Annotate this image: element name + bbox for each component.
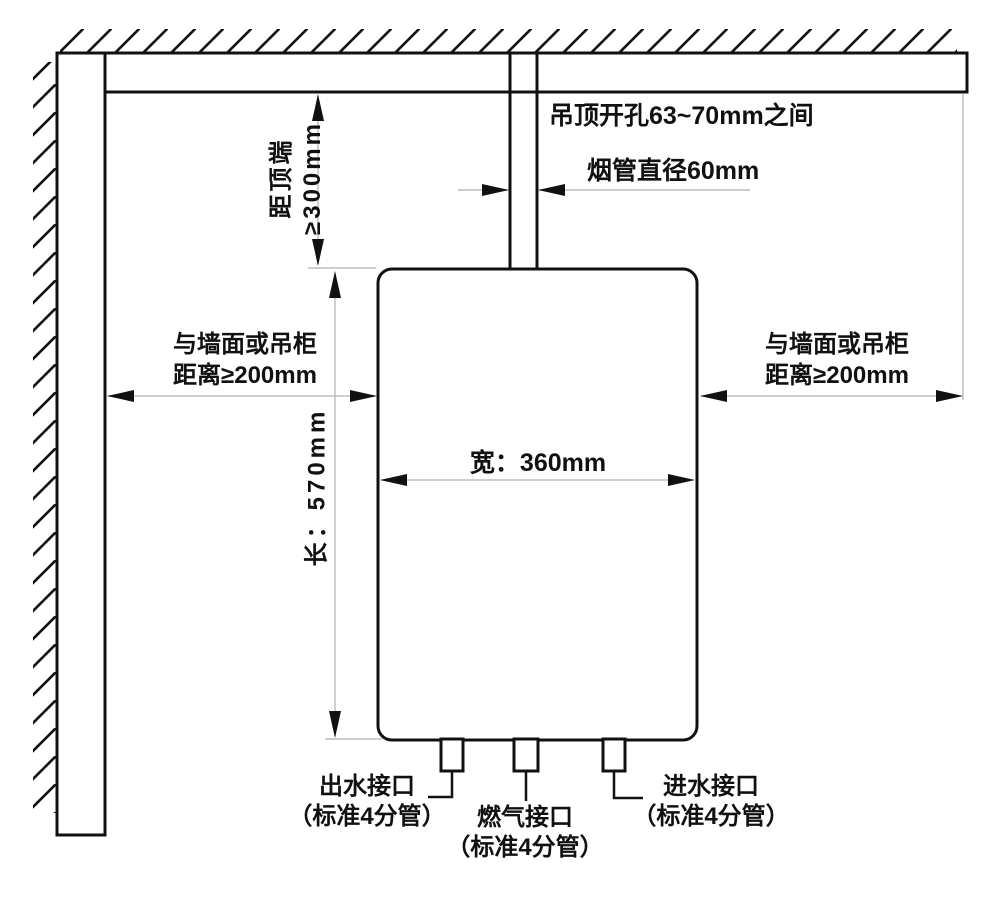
gas-connection-label: 燃气接口 （标准4分管） <box>446 803 603 863</box>
water-inlet-label-line1: 进水接口 <box>632 772 789 802</box>
arrow-down-top-clearance <box>312 239 324 266</box>
right-clearance-label-line1: 与墙面或吊柜 <box>765 329 909 360</box>
water-inlet-label-line2: （标准4分管） <box>632 802 789 832</box>
water-outlet-stub <box>441 739 463 771</box>
arrow-right-left-clearance <box>350 390 377 402</box>
unit-height-label: 长：570mm <box>302 408 333 567</box>
left-clearance-label: 与墙面或吊柜 距离≥200mm <box>173 329 317 391</box>
ceiling-opening-label: 吊顶开孔63~70mm之间 <box>549 101 814 131</box>
top-clearance-label: 距顶端 ≥300mm <box>266 121 328 235</box>
left-clearance-label-line2: 距离≥200mm <box>173 360 317 391</box>
arrow-down-unit-height <box>329 711 341 738</box>
gas-connection-label-line2: （标准4分管） <box>446 833 603 863</box>
arrow-left-flue <box>538 184 565 196</box>
water-inlet-stub <box>603 739 625 771</box>
arrow-right-right-clearance <box>936 390 963 402</box>
heater-body <box>378 269 697 740</box>
right-clearance-label: 与墙面或吊柜 距离≥200mm <box>765 329 909 391</box>
top-clearance-label-line1: 距顶端 <box>266 121 297 235</box>
right-clearance-label-line2: 距离≥200mm <box>765 360 909 391</box>
top-clearance-label-line2: ≥300mm <box>297 121 328 235</box>
arrow-up-top-clearance <box>312 94 324 121</box>
water-outlet-label-line1: 出水接口 <box>288 772 445 802</box>
label-leaders <box>428 771 643 801</box>
unit-width-label: 宽：360mm <box>470 448 606 478</box>
wall <box>57 53 105 835</box>
wall-hatching <box>33 62 57 813</box>
water-inlet-label: 进水接口 （标准4分管） <box>632 772 789 832</box>
ceiling-hatching <box>60 29 957 53</box>
arrow-left-left-clearance <box>107 390 134 402</box>
water-outlet-label: 出水接口 （标准4分管） <box>288 772 445 832</box>
gas-connection-label-line1: 燃气接口 <box>446 803 603 833</box>
arrow-right-flue <box>482 184 509 196</box>
connection-stubs <box>441 739 625 771</box>
flue-diameter-label: 烟管直径60mm <box>587 156 759 186</box>
left-clearance-label-line1: 与墙面或吊柜 <box>173 329 317 360</box>
installation-diagram: 吊顶开孔63~70mm之间 烟管直径60mm 距顶端 ≥300mm 与墙面或吊柜… <box>0 0 1000 900</box>
arrow-left-right-clearance <box>700 390 727 402</box>
gas-connection-stub <box>514 739 538 771</box>
arrow-up-unit-height <box>329 271 341 298</box>
water-outlet-label-line2: （标准4分管） <box>288 802 445 832</box>
